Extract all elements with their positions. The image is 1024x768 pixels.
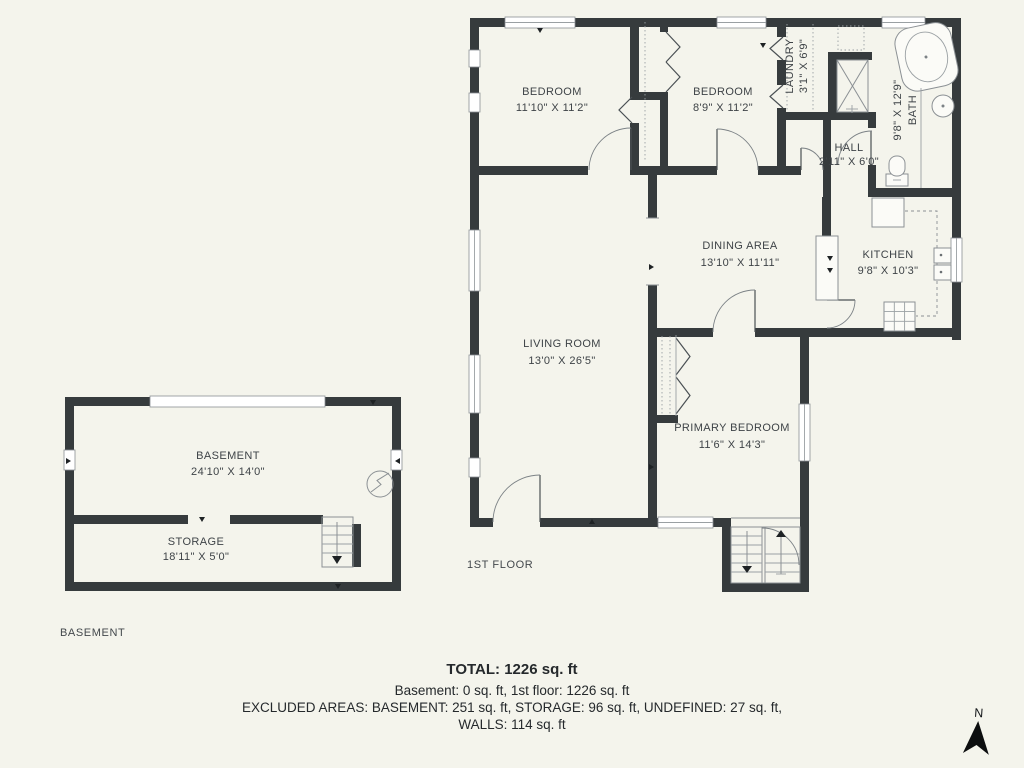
electrical-panel-icon — [367, 471, 393, 497]
svg-text:11'6" X 14'3": 11'6" X 14'3" — [699, 439, 766, 451]
north-label: N — [974, 706, 984, 721]
svg-text:PRIMARY BEDROOM: PRIMARY BEDROOM — [674, 422, 790, 434]
room-label-kitchen: KITCHEN 9'8" X 10'3" — [858, 249, 919, 277]
room-label-dining-area: DINING AREA 13'10" X 11'11" — [701, 240, 780, 269]
room-label-bedroom-2: BEDROOM 8'9" X 11'2" — [693, 86, 753, 114]
svg-text:24'10" X 14'0": 24'10" X 14'0" — [191, 466, 265, 478]
cased-opening — [646, 218, 659, 285]
room-label-storage: STORAGE 18'11" X 5'0" — [163, 536, 230, 563]
laundry-bifold-icon — [770, 37, 783, 60]
basement-stairs-icon — [322, 517, 353, 567]
svg-text:3'1" X 6'9": 3'1" X 6'9" — [798, 39, 810, 93]
basement-walls — [65, 397, 401, 591]
first-floor-label: 1ST FLOOR — [467, 559, 533, 571]
room-label-bedroom-1: BEDROOM 11'10" X 11'2" — [516, 86, 588, 114]
summary-floors: Basement: 0 sq. ft, 1st floor: 1226 sq. … — [0, 683, 1024, 698]
closet-bifold-icon — [676, 338, 690, 375]
north-arrow-icon: N — [948, 698, 1008, 762]
room-label-laundry: LAUNDRY 3'1" X 6'9" — [784, 38, 810, 93]
svg-text:BATH: BATH — [907, 95, 919, 125]
svg-text:2'11" X 6'0": 2'11" X 6'0" — [819, 156, 879, 168]
summary-excluded-areas: EXCLUDED AREAS: BASEMENT: 251 sq. ft, ST… — [0, 700, 1024, 715]
basement-label: BASEMENT — [60, 627, 125, 639]
svg-text:STORAGE: STORAGE — [168, 536, 224, 548]
summary-walls: WALLS: 114 sq. ft — [0, 717, 1024, 732]
room-label-living-room: LIVING ROOM 13'0" X 26'5" — [523, 338, 601, 367]
closet-bifold-icon — [676, 377, 690, 414]
closet-door-icon — [619, 97, 632, 123]
svg-text:BEDROOM: BEDROOM — [522, 86, 582, 98]
svg-text:9'8" X 10'3": 9'8" X 10'3" — [858, 265, 919, 277]
svg-text:HALL: HALL — [834, 142, 863, 154]
svg-text:8'9" X 11'2": 8'9" X 11'2" — [693, 102, 753, 114]
closet-bifold-icon — [666, 62, 680, 92]
laundry-bifold-icon — [770, 85, 783, 108]
room-label-primary-bedroom: PRIMARY BEDROOM 11'6" X 14'3" — [674, 422, 790, 451]
room-label-basement: BASEMENT 24'10" X 14'0" — [191, 450, 265, 478]
stove-icon — [884, 302, 915, 331]
toilet-icon — [886, 156, 908, 186]
svg-text:11'10" X 11'2": 11'10" X 11'2" — [516, 102, 588, 114]
svg-text:KITCHEN: KITCHEN — [862, 249, 913, 261]
svg-text:BEDROOM: BEDROOM — [693, 86, 753, 98]
bath-sink-icon — [932, 95, 954, 117]
basement-plan: BASEMENT 24'10" X 14'0" STORAGE 18'11" X… — [60, 396, 402, 639]
floor-plan-canvas: BEDROOM 11'10" X 11'2" BEDROOM 8'9" X 11… — [0, 0, 1024, 768]
svg-text:13'10" X 11'11": 13'10" X 11'11" — [701, 257, 780, 269]
fridge-icon — [872, 198, 904, 227]
svg-text:9'8" X 12'9": 9'8" X 12'9" — [892, 80, 904, 141]
closet-bifold-icon — [666, 32, 680, 62]
svg-text:DINING AREA: DINING AREA — [702, 240, 778, 252]
basement-ticks — [66, 400, 400, 589]
first-floor-plan: BEDROOM 11'10" X 11'2" BEDROOM 8'9" X 11… — [467, 17, 962, 592]
first-floor-stairs-icon — [731, 517, 800, 583]
svg-text:BASEMENT: BASEMENT — [196, 450, 260, 462]
floor-plan-svg: BEDROOM 11'10" X 11'2" BEDROOM 8'9" X 11… — [0, 0, 1024, 768]
svg-text:18'11" X 5'0": 18'11" X 5'0" — [163, 551, 230, 563]
svg-text:13'0" X 26'5": 13'0" X 26'5" — [528, 355, 595, 367]
svg-text:LAUNDRY: LAUNDRY — [784, 38, 796, 93]
svg-text:LIVING ROOM: LIVING ROOM — [523, 338, 601, 350]
summary-total: TOTAL: 1226 sq. ft — [0, 661, 1024, 678]
shower-icon — [837, 60, 868, 113]
